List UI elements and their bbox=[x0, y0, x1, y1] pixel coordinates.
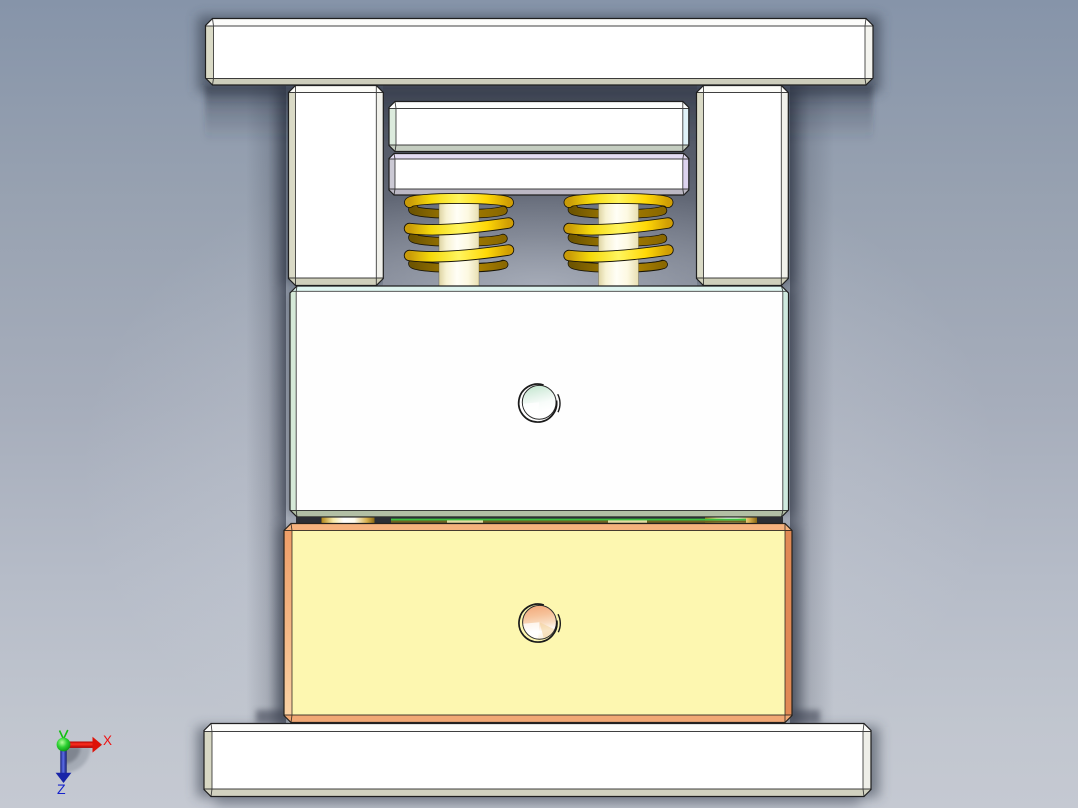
svg-text:Z: Z bbox=[57, 781, 66, 797]
svg-text:X: X bbox=[103, 733, 112, 748]
